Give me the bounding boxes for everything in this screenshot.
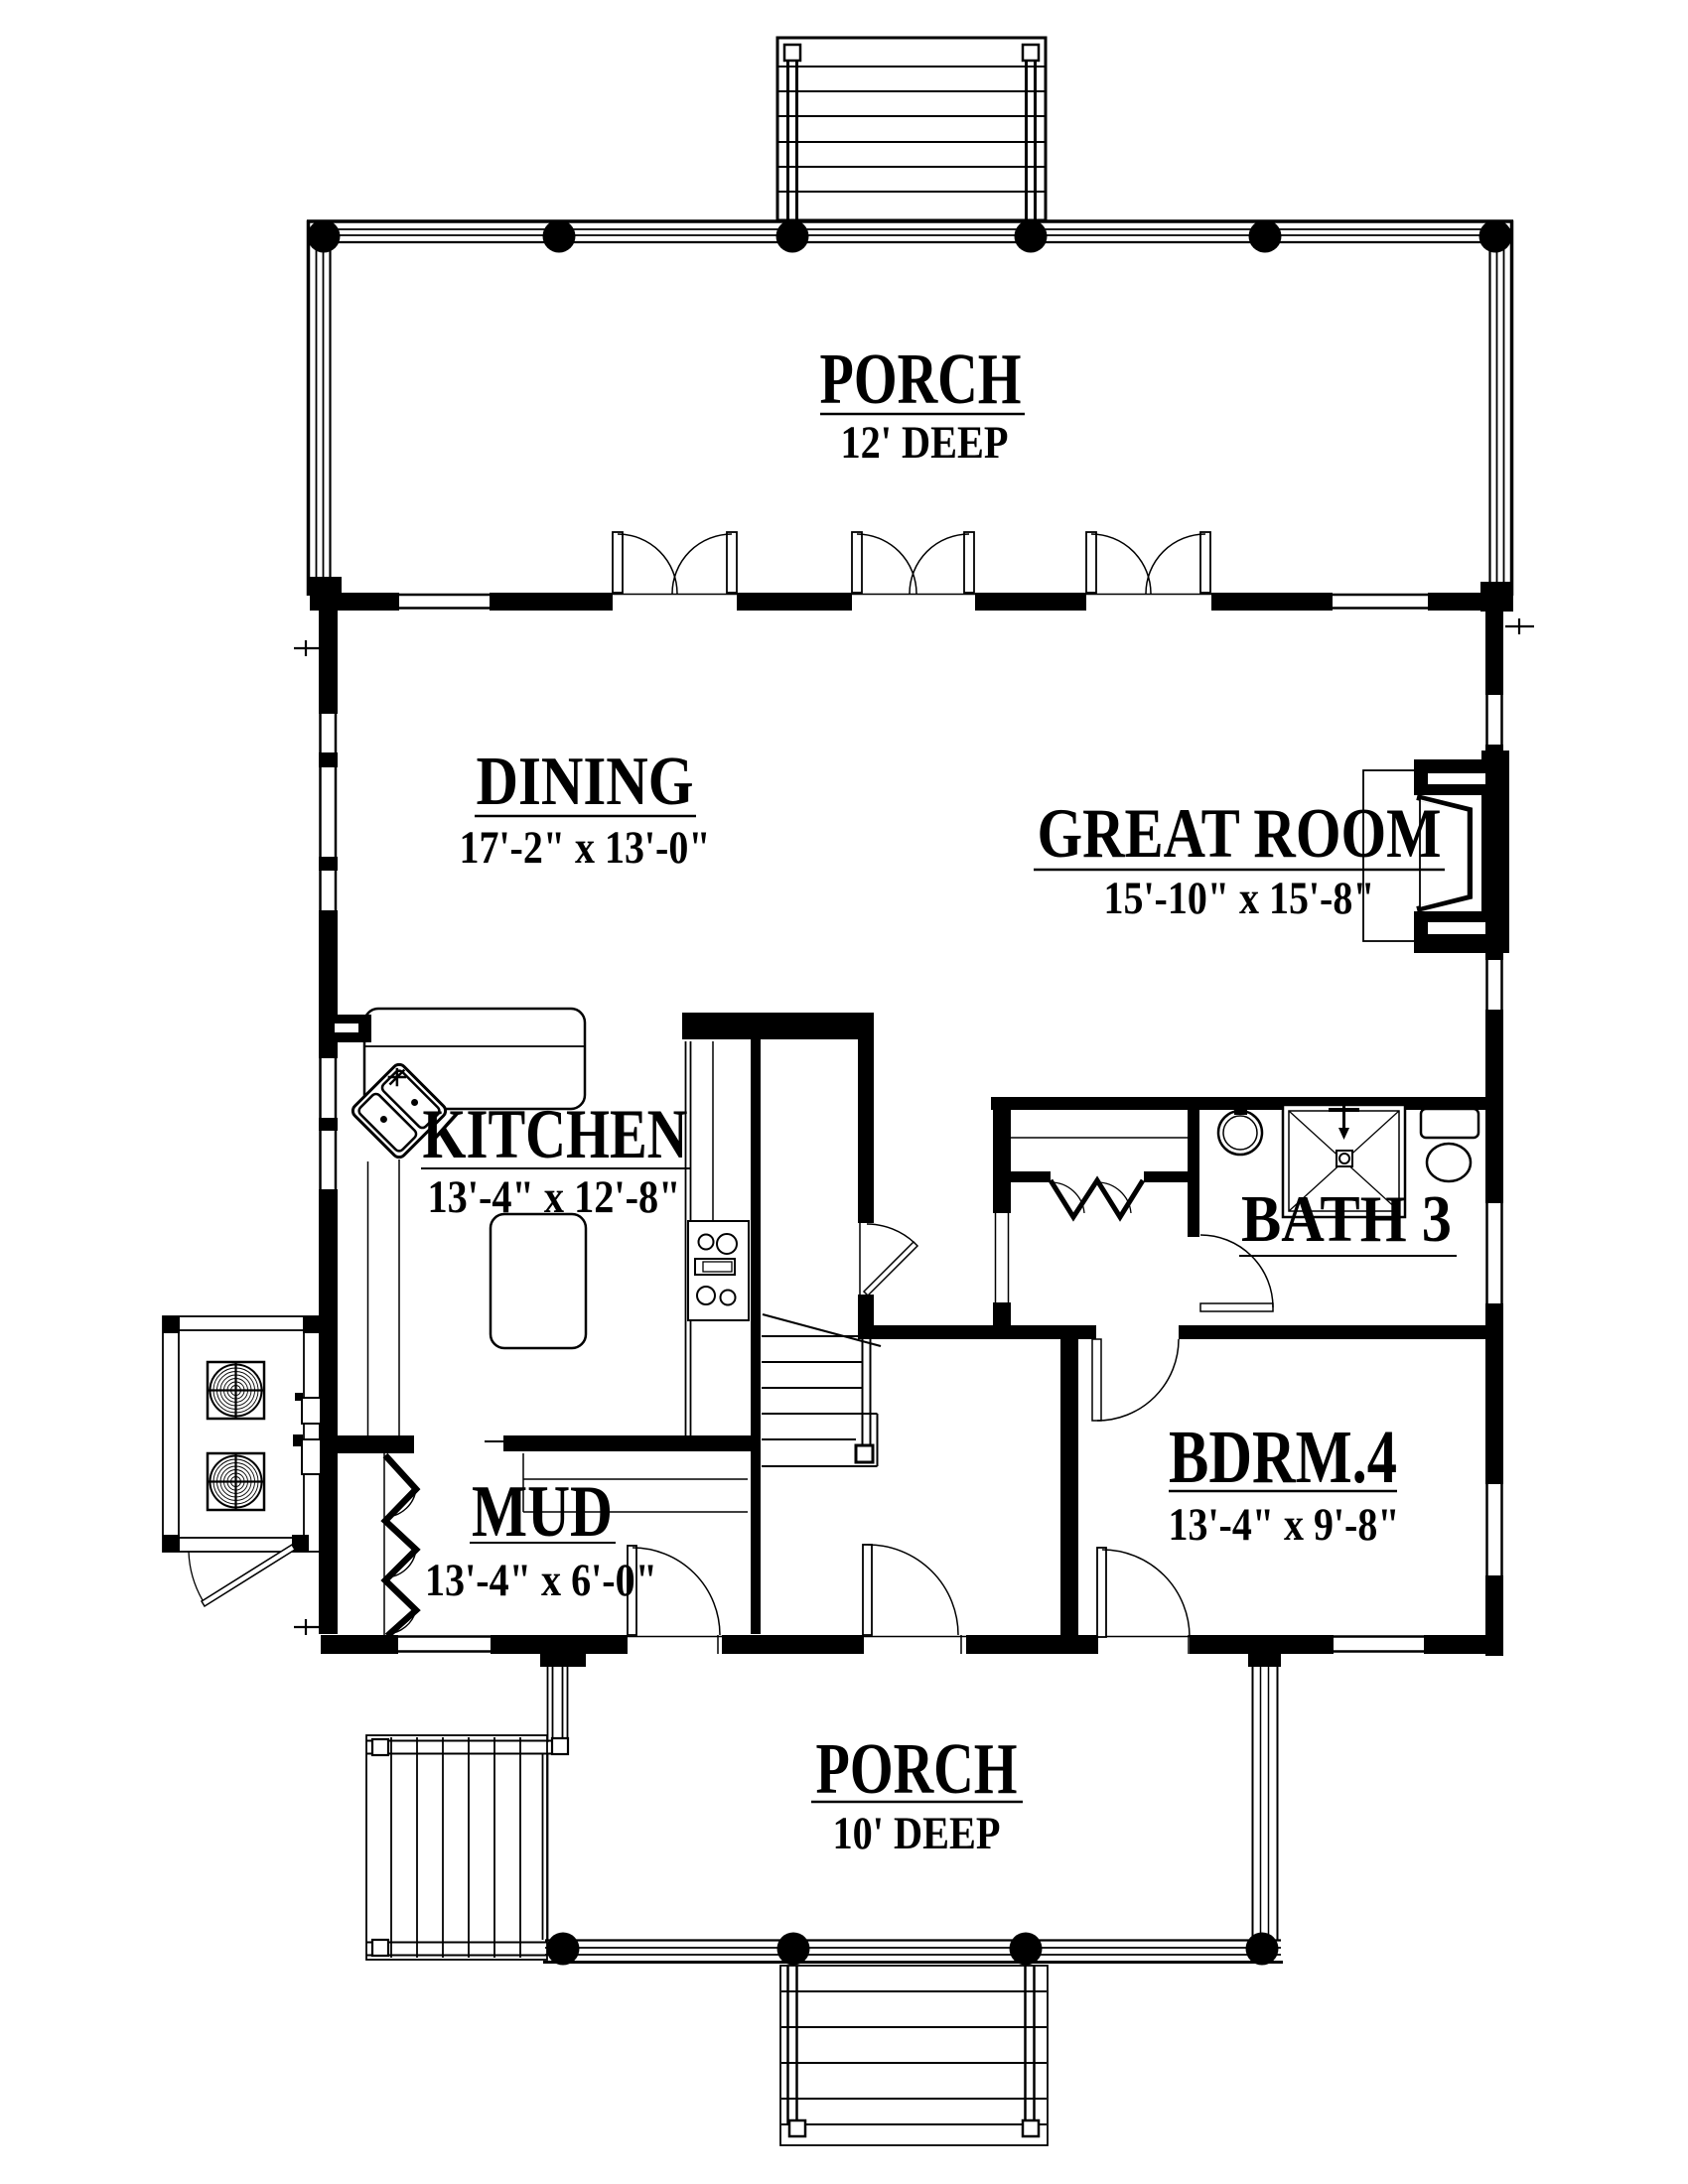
svg-text:KITCHEN: KITCHEN: [423, 1096, 688, 1173]
svg-text:10' DEEP: 10' DEEP: [833, 1808, 1001, 1859]
svg-text:DINING: DINING: [477, 744, 694, 820]
svg-text:MUD: MUD: [472, 1471, 613, 1553]
svg-text:PORCH: PORCH: [816, 1728, 1018, 1809]
svg-text:PORCH: PORCH: [820, 339, 1022, 419]
svg-text:GREAT ROOM: GREAT ROOM: [1038, 795, 1442, 873]
svg-text:BDRM.4: BDRM.4: [1169, 1416, 1397, 1499]
svg-text:15'-10" x 15'-8": 15'-10" x 15'-8": [1104, 873, 1375, 924]
svg-text:13'-4" x 12'-8": 13'-4" x 12'-8": [428, 1171, 681, 1223]
svg-text:BATH 3: BATH 3: [1241, 1182, 1452, 1256]
svg-text:13'-4" x 6'-0": 13'-4" x 6'-0": [425, 1555, 657, 1606]
svg-text:12' DEEP: 12' DEEP: [841, 417, 1009, 469]
svg-text:13'-4" x 9'-8": 13'-4" x 9'-8": [1169, 1499, 1400, 1551]
svg-text:17'-2" x 13'-0": 17'-2" x 13'-0": [460, 822, 711, 874]
